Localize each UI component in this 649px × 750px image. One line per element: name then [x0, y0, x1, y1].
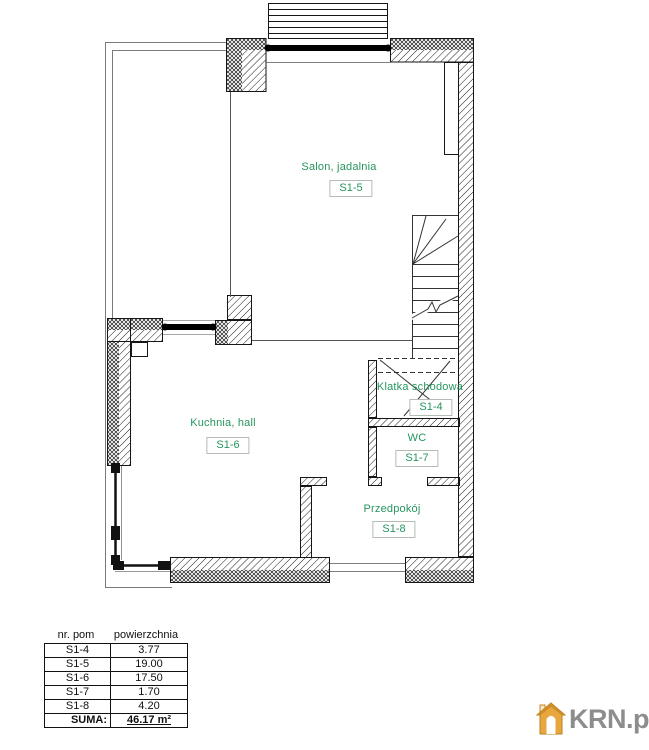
table-header: nr. pom powierzchnia	[44, 629, 188, 641]
room-label-kuchnia: Kuchnia, hall	[190, 417, 256, 429]
table-row: S1-6 17.50	[45, 672, 188, 686]
area-table: nr. pom powierzchnia S1-4 3.77 S1-5 19.0…	[44, 629, 188, 728]
table-row: S1-8 4.20	[45, 700, 188, 714]
room-nr-cell: S1-4	[45, 644, 111, 658]
room-label-wc: WC	[408, 432, 427, 444]
room-nr-cell: S1-6	[45, 672, 111, 686]
table-row: S1-7 1.70	[45, 686, 188, 700]
terrace-boundary	[105, 42, 226, 588]
krn-watermark: KRN.pl	[536, 702, 649, 735]
room-area-cell: 3.77	[111, 644, 188, 658]
walls	[107, 38, 474, 583]
floorplan-page: Salon, jadalnia S1-5 Kuchnia, hall S1-6 …	[0, 0, 649, 750]
exterior-stairs	[269, 4, 388, 39]
wall-niche	[445, 63, 459, 155]
room-area-cell: 19.00	[111, 658, 188, 672]
room-nr-cell: S1-5	[45, 658, 111, 672]
table-row: S1-4 3.77	[45, 644, 188, 658]
room-nr-cell: S1-8	[45, 700, 111, 714]
room-code-przedpokoj: S1-8	[372, 521, 415, 538]
total-label: SUMA:	[45, 714, 111, 728]
room-area-cell: 1.70	[111, 686, 188, 700]
glazed-wall	[111, 463, 170, 572]
table-header-area: powierzchnia	[108, 629, 184, 641]
logo-text: KRN.pl	[569, 704, 649, 734]
total-value: 46.17 m²	[111, 714, 188, 728]
room-code-klatka: S1-4	[409, 399, 452, 416]
floorplan-drawing	[0, 0, 649, 620]
room-area-cell: 4.20	[111, 700, 188, 714]
room-area-cell: 17.50	[111, 672, 188, 686]
table-row: S1-5 19.00	[45, 658, 188, 672]
table-total-row: SUMA: 46.17 m²	[45, 714, 188, 728]
room-code-salon: S1-5	[329, 180, 372, 197]
room-label-przedpokoj: Przedpokój	[363, 503, 420, 515]
room-code-wc: S1-7	[395, 450, 438, 467]
room-label-salon: Salon, jadalnia	[301, 161, 376, 173]
window-left	[162, 321, 217, 335]
window-top	[265, 45, 392, 63]
room-label-klatka: Klatka schodowa	[377, 381, 463, 393]
table-header-nr: nr. pom	[44, 629, 108, 641]
room-code-kuchnia: S1-6	[206, 437, 249, 454]
house-icon	[536, 702, 566, 735]
room-nr-cell: S1-7	[45, 686, 111, 700]
